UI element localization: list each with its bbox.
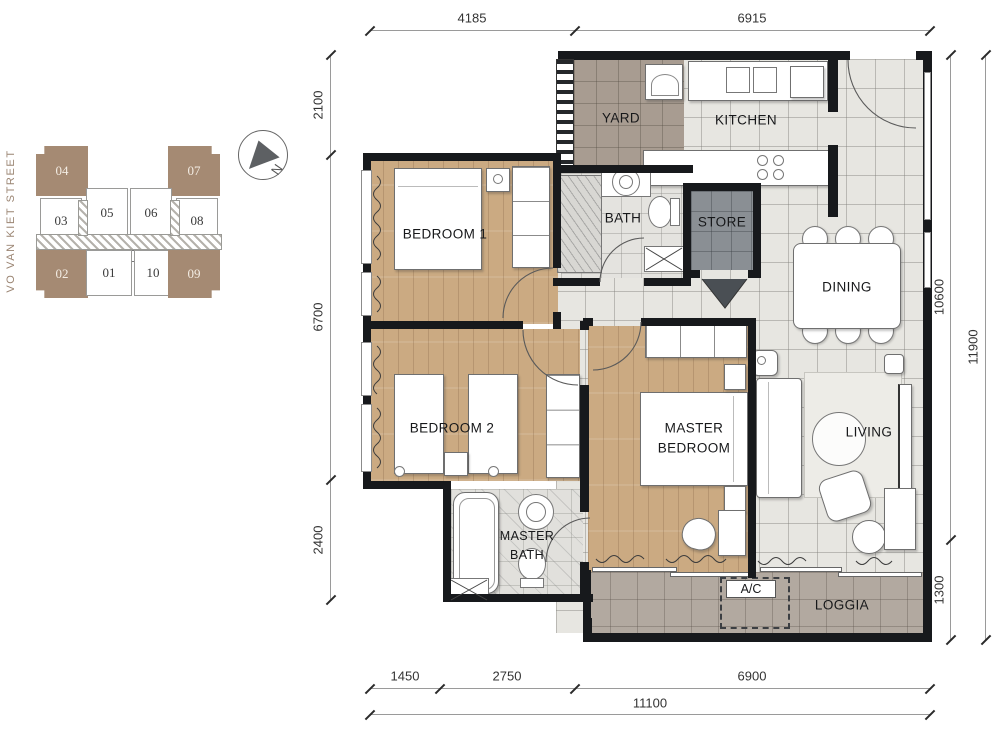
dimension-line	[950, 55, 951, 640]
toilet-tank	[670, 198, 680, 226]
dim-tick	[326, 595, 337, 606]
wall	[363, 321, 523, 329]
wall	[923, 618, 932, 642]
dim-value: 6700	[311, 303, 326, 332]
dim-tick	[326, 50, 337, 61]
unit-label: 03	[55, 213, 68, 229]
unit-label: 05	[101, 205, 114, 221]
sliding-door	[592, 567, 677, 572]
room-label-store: STORE	[698, 215, 746, 230]
dresser	[718, 510, 746, 556]
wall	[553, 165, 693, 173]
dim-value: 2400	[311, 526, 326, 555]
wall	[583, 570, 591, 642]
dim-tick	[946, 635, 957, 646]
wall	[553, 278, 600, 286]
lamp-dot	[488, 466, 499, 477]
window	[924, 232, 931, 288]
dim-value: 10600	[932, 279, 947, 315]
dim-value: 1450	[391, 669, 420, 684]
room-label-bedroom1: BEDROOM 1	[403, 227, 488, 242]
bathtub-inner	[459, 498, 495, 590]
room-label-master-bedroom-1: MASTER	[665, 421, 724, 436]
room-label-living: LIVING	[846, 425, 893, 440]
shower-enclosure	[557, 175, 602, 273]
nightstand	[724, 486, 746, 512]
dim-tick	[981, 50, 992, 61]
wall	[828, 145, 838, 217]
dim-tick	[925, 684, 936, 695]
room-label-bath: BATH	[605, 211, 642, 226]
dim-tick	[435, 684, 446, 695]
lamp-dot	[493, 174, 503, 184]
dimension-line	[370, 714, 930, 715]
unit-label: 10	[147, 265, 160, 281]
room-label-loggia: LOGGIA	[815, 598, 869, 613]
wall	[558, 51, 850, 60]
tv-console	[898, 384, 912, 494]
window	[361, 342, 372, 396]
dim-value: 2750	[493, 669, 522, 684]
wall	[641, 318, 755, 326]
unit-label: 04	[56, 163, 69, 179]
bed-pillow-line	[398, 186, 478, 187]
room-label-kitchen: KITCHEN	[715, 113, 777, 128]
floor-store	[691, 191, 753, 270]
wall	[443, 481, 451, 602]
wall	[683, 183, 761, 191]
ac-label-box: A/C	[726, 580, 776, 598]
wall	[748, 270, 761, 278]
keyplan-core-hatch	[170, 200, 180, 236]
unit-label: 06	[145, 205, 158, 221]
keyplan-core-hatch	[78, 200, 88, 236]
dim-tick	[925, 710, 936, 721]
window	[361, 272, 372, 316]
sliding-door	[670, 572, 755, 577]
dim-value: 11100	[633, 696, 667, 711]
unit-label: 02	[56, 266, 69, 282]
unit-label: 09	[188, 266, 201, 282]
washing-machine-drum	[651, 74, 679, 96]
dimension-line	[330, 55, 331, 600]
keyplan-unit-01: 01	[86, 250, 132, 296]
unit-label: 08	[191, 213, 204, 229]
dimension-line	[370, 30, 930, 31]
keyplan-unit-10: 10	[134, 250, 172, 296]
dimension-line	[370, 688, 930, 689]
dim-value: 4185	[458, 11, 487, 26]
keyplan-unit-04: 04	[36, 146, 88, 196]
wall	[583, 633, 932, 642]
sofa-back-line	[768, 382, 769, 494]
wardrobe	[645, 324, 747, 358]
wall	[683, 183, 691, 278]
floor-plan-canvas: VO VAN KIET STREET 04 07 03 05 06 08 02 …	[0, 0, 1000, 731]
yard-louver	[556, 59, 574, 167]
dim-tick	[570, 684, 581, 695]
dim-tick	[326, 475, 337, 486]
toilet-tank	[520, 578, 544, 588]
sliding-door	[838, 572, 922, 577]
bath-basin-inner	[619, 175, 633, 189]
room-label-master-bath-2: BATH	[510, 548, 544, 562]
kitchen-sink	[753, 67, 777, 93]
room-label-yard: YARD	[602, 111, 640, 126]
wall	[828, 59, 838, 112]
room-label-dining: DINING	[822, 280, 872, 295]
side-table	[884, 354, 904, 374]
bed-master	[640, 392, 748, 486]
window	[924, 72, 931, 220]
sofa	[756, 378, 802, 498]
lamp-dot	[394, 466, 405, 477]
nightstand	[724, 364, 746, 390]
keyplan-unit-02: 02	[36, 250, 88, 298]
dim-value: 6900	[738, 669, 767, 684]
bed-pillow-line	[733, 396, 734, 482]
bed-double	[394, 168, 482, 270]
kitchen-sink	[726, 67, 750, 93]
wall	[363, 153, 561, 161]
stove-burner	[757, 169, 768, 180]
dim-value: 11900	[966, 329, 981, 364]
window	[361, 404, 372, 472]
stove-burner	[773, 169, 784, 180]
wall	[748, 318, 756, 578]
unit-label: 07	[188, 163, 201, 179]
unit-label: 01	[103, 265, 116, 281]
street-label: VO VAN KIET STREET	[5, 149, 17, 292]
dim-tick	[925, 26, 936, 37]
floor-lamp-dot	[757, 356, 766, 365]
wall	[753, 183, 761, 278]
dim-tick	[570, 26, 581, 37]
keyplan-unit-05: 05	[86, 188, 128, 238]
wall	[583, 318, 593, 326]
dim-tick	[365, 710, 376, 721]
stove-burner	[757, 155, 768, 166]
keyplan-corridor-hatch	[36, 234, 222, 250]
keyplan-unit-09: 09	[168, 250, 220, 298]
ottoman	[852, 520, 886, 554]
room-label-master-bath-1: MASTER	[500, 529, 555, 543]
dim-tick	[946, 535, 957, 546]
wall	[363, 481, 451, 489]
wall	[443, 594, 593, 602]
dimension-line	[985, 55, 986, 640]
wall	[683, 270, 700, 278]
toilet	[648, 196, 672, 228]
dim-value: 2100	[311, 91, 326, 120]
nightstand	[444, 452, 468, 476]
cabinet	[884, 488, 916, 550]
window	[361, 170, 372, 264]
keyplan-unit-06: 06	[130, 188, 172, 238]
keyplan-unit-07: 07	[168, 146, 220, 196]
wall	[553, 161, 561, 268]
dim-tick	[326, 150, 337, 161]
wall	[553, 312, 561, 329]
fridge	[790, 66, 824, 98]
room-label-bedroom2: BEDROOM 2	[410, 421, 495, 436]
wall	[644, 278, 691, 286]
stove-burner	[773, 155, 784, 166]
wardrobe	[546, 374, 580, 478]
dim-tick	[365, 26, 376, 37]
shaft-box	[644, 246, 684, 272]
dim-value: 6915	[738, 11, 767, 26]
dim-tick	[981, 635, 992, 646]
master-bath-basin-inner	[526, 502, 546, 522]
ac-label: A/C	[741, 582, 762, 596]
sliding-door	[760, 567, 842, 572]
dim-tick	[365, 684, 376, 695]
wall	[580, 385, 589, 512]
dim-value: 1300	[932, 576, 947, 605]
dim-tick	[946, 50, 957, 61]
room-label-master-bedroom-2: BEDROOM	[658, 441, 731, 456]
wardrobe	[512, 166, 550, 268]
